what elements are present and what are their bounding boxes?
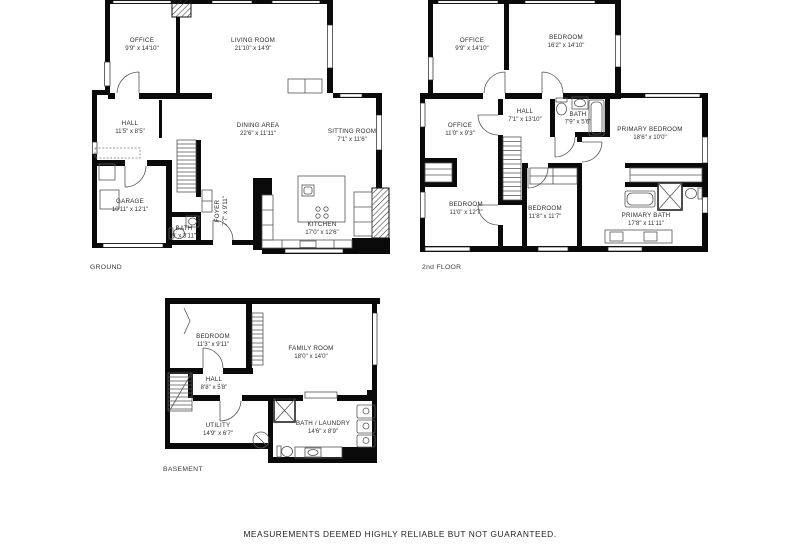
bedroom-door-arc xyxy=(203,348,223,368)
room-label: DINING AREA xyxy=(237,122,280,129)
room-label: SITTING ROOM xyxy=(328,128,376,135)
room-dims: 11'8" x 11'7" xyxy=(529,213,562,220)
room-dims: 7'9" x 5'6" xyxy=(565,119,592,126)
floorplan-canvas: OFFICE 9'9" x 14'10" LIVING ROOM 21'10" … xyxy=(0,0,800,550)
ground-floor-plan: OFFICE 9'9" x 14'10" LIVING ROOM 21'10" … xyxy=(90,0,390,271)
room-label: BATH xyxy=(175,225,192,232)
room-dims: 7'1" x 11'6" xyxy=(337,136,367,143)
primary-door-arc xyxy=(582,142,602,162)
room-label: BATH / LAUNDRY xyxy=(296,420,350,427)
room-label: HALL xyxy=(122,120,139,127)
room-label: KITCHEN xyxy=(308,221,337,228)
room-dims: 9'9" x 14'10" xyxy=(455,45,488,52)
ground-labels: OFFICE 9'9" x 14'10" LIVING ROOM 21'10" … xyxy=(90,37,376,271)
pantry-cabinets xyxy=(262,195,273,240)
room-label: BEDROOM xyxy=(528,205,562,212)
kitchen-sink xyxy=(300,241,316,248)
ground-stairs xyxy=(177,140,196,192)
room-label: BEDROOM xyxy=(449,201,483,208)
room-label: OFFICE xyxy=(460,37,484,44)
room-dims: 11'3" x 9'11" xyxy=(197,341,230,348)
room-label: OFFICE xyxy=(130,37,154,44)
bath-door-arc xyxy=(555,137,575,157)
room-label: FAMILY ROOM xyxy=(288,345,333,352)
room-dims: 10'11" x 12'1" xyxy=(112,206,148,213)
closet-bifold-door xyxy=(184,308,190,334)
room-dims: 14'6" x 8'9" xyxy=(308,428,338,435)
shower xyxy=(274,399,295,422)
kitchen-cabinets xyxy=(354,192,372,236)
second-floor-plan: OFFICE 9'9" x 14'10" BEDROOM 16'2" x 14'… xyxy=(420,0,708,271)
primary-shower xyxy=(658,183,682,210)
room-label: BEDROOM xyxy=(549,34,583,41)
office-door-arc xyxy=(117,72,139,93)
office-closet xyxy=(425,163,452,182)
bedroom-mid-door-arc xyxy=(528,168,548,188)
room-dims: 21'10" x 14'9" xyxy=(235,45,272,52)
room-label: BATH xyxy=(569,111,586,118)
room-dims: 14'9" x 6'7" xyxy=(203,430,233,437)
garage-door-arc xyxy=(125,166,146,187)
room-dims: 8'8" x 5'8" xyxy=(201,384,228,391)
room-label: BEDROOM xyxy=(196,333,230,340)
cooktop xyxy=(316,207,328,218)
room-dims: 22'6" x 11'11" xyxy=(240,130,276,137)
fireplace-chimney-hatch xyxy=(372,188,389,238)
kitchen-island xyxy=(298,176,345,222)
primary-tub xyxy=(625,191,655,207)
chimney-hatch-top xyxy=(172,0,191,17)
disclaimer-text: MEASUREMENTS DEEMED HIGHLY RELIABLE BUT … xyxy=(243,529,556,539)
bedroom-upper-door-arc xyxy=(542,72,563,93)
room-dims: 16'2" x 14'10" xyxy=(548,42,585,49)
room-label: LIVING ROOM xyxy=(231,37,275,44)
floor-label-basement: BASEMENT xyxy=(163,466,203,473)
hall-closet xyxy=(95,148,140,158)
room-dims: 11'5" x 8'5" xyxy=(115,128,145,135)
basement-walls xyxy=(165,298,380,463)
utility-door-arc xyxy=(220,401,241,421)
room-label: OFFICE xyxy=(448,122,472,129)
room-label: GARAGE xyxy=(116,198,144,205)
second-stairs xyxy=(503,137,521,200)
room-dims: 11'0" x 12'7" xyxy=(450,209,483,216)
room-label: HALL xyxy=(206,376,223,383)
room-label: UTILITY xyxy=(206,422,231,429)
room-dims: 17'0" x 12'6" xyxy=(305,229,338,236)
basement-labels: BEDROOM 11'3" x 9'11" FAMILY ROOM 18'0" … xyxy=(163,333,350,473)
room-label: PRIMARY BATH xyxy=(622,212,671,219)
floorplan-page: OFFICE 9'9" x 14'10" LIVING ROOM 21'10" … xyxy=(0,0,800,550)
room-dims: 9'9" x 14'10" xyxy=(125,45,158,52)
room-dims: 18'0" x 14'0" xyxy=(294,353,327,360)
room-dims: 7'7" x 9'11" xyxy=(222,196,229,226)
room-label: PRIMARY BEDROOM xyxy=(617,126,682,133)
toilet xyxy=(277,446,293,457)
office-mid-door-arc xyxy=(478,115,498,135)
basement-windows xyxy=(373,313,377,365)
room-dims: 17'8" x 11'11" xyxy=(628,220,664,227)
room-dims: 18'6" x 10'0" xyxy=(633,134,666,141)
basement-floor-plan: BEDROOM 11'3" x 9'11" FAMILY ROOM 18'0" … xyxy=(163,298,380,473)
garage-door xyxy=(103,244,163,248)
office-upper-door-arc xyxy=(484,72,505,93)
room-dims: 9' x 3'11" xyxy=(172,233,196,240)
garage-storage xyxy=(99,164,115,180)
room-dims: 7'1" x 13'10" xyxy=(508,116,541,123)
built-in-counter xyxy=(305,392,337,398)
primary-toilet xyxy=(686,188,703,199)
primary-vanity xyxy=(605,230,672,243)
bath-toilet xyxy=(556,98,567,115)
room-dims: 11'0" x 9'3" xyxy=(445,130,475,137)
floor-label-second: 2nd FLOOR xyxy=(422,264,461,271)
floor-label-ground: GROUND xyxy=(90,264,122,271)
foyer-label-rotated: FOYER 7'7" x 9'11" xyxy=(214,196,229,226)
laundry-sink xyxy=(295,447,342,458)
room-label: FOYER xyxy=(214,199,221,222)
room-label: HALL xyxy=(517,108,534,115)
